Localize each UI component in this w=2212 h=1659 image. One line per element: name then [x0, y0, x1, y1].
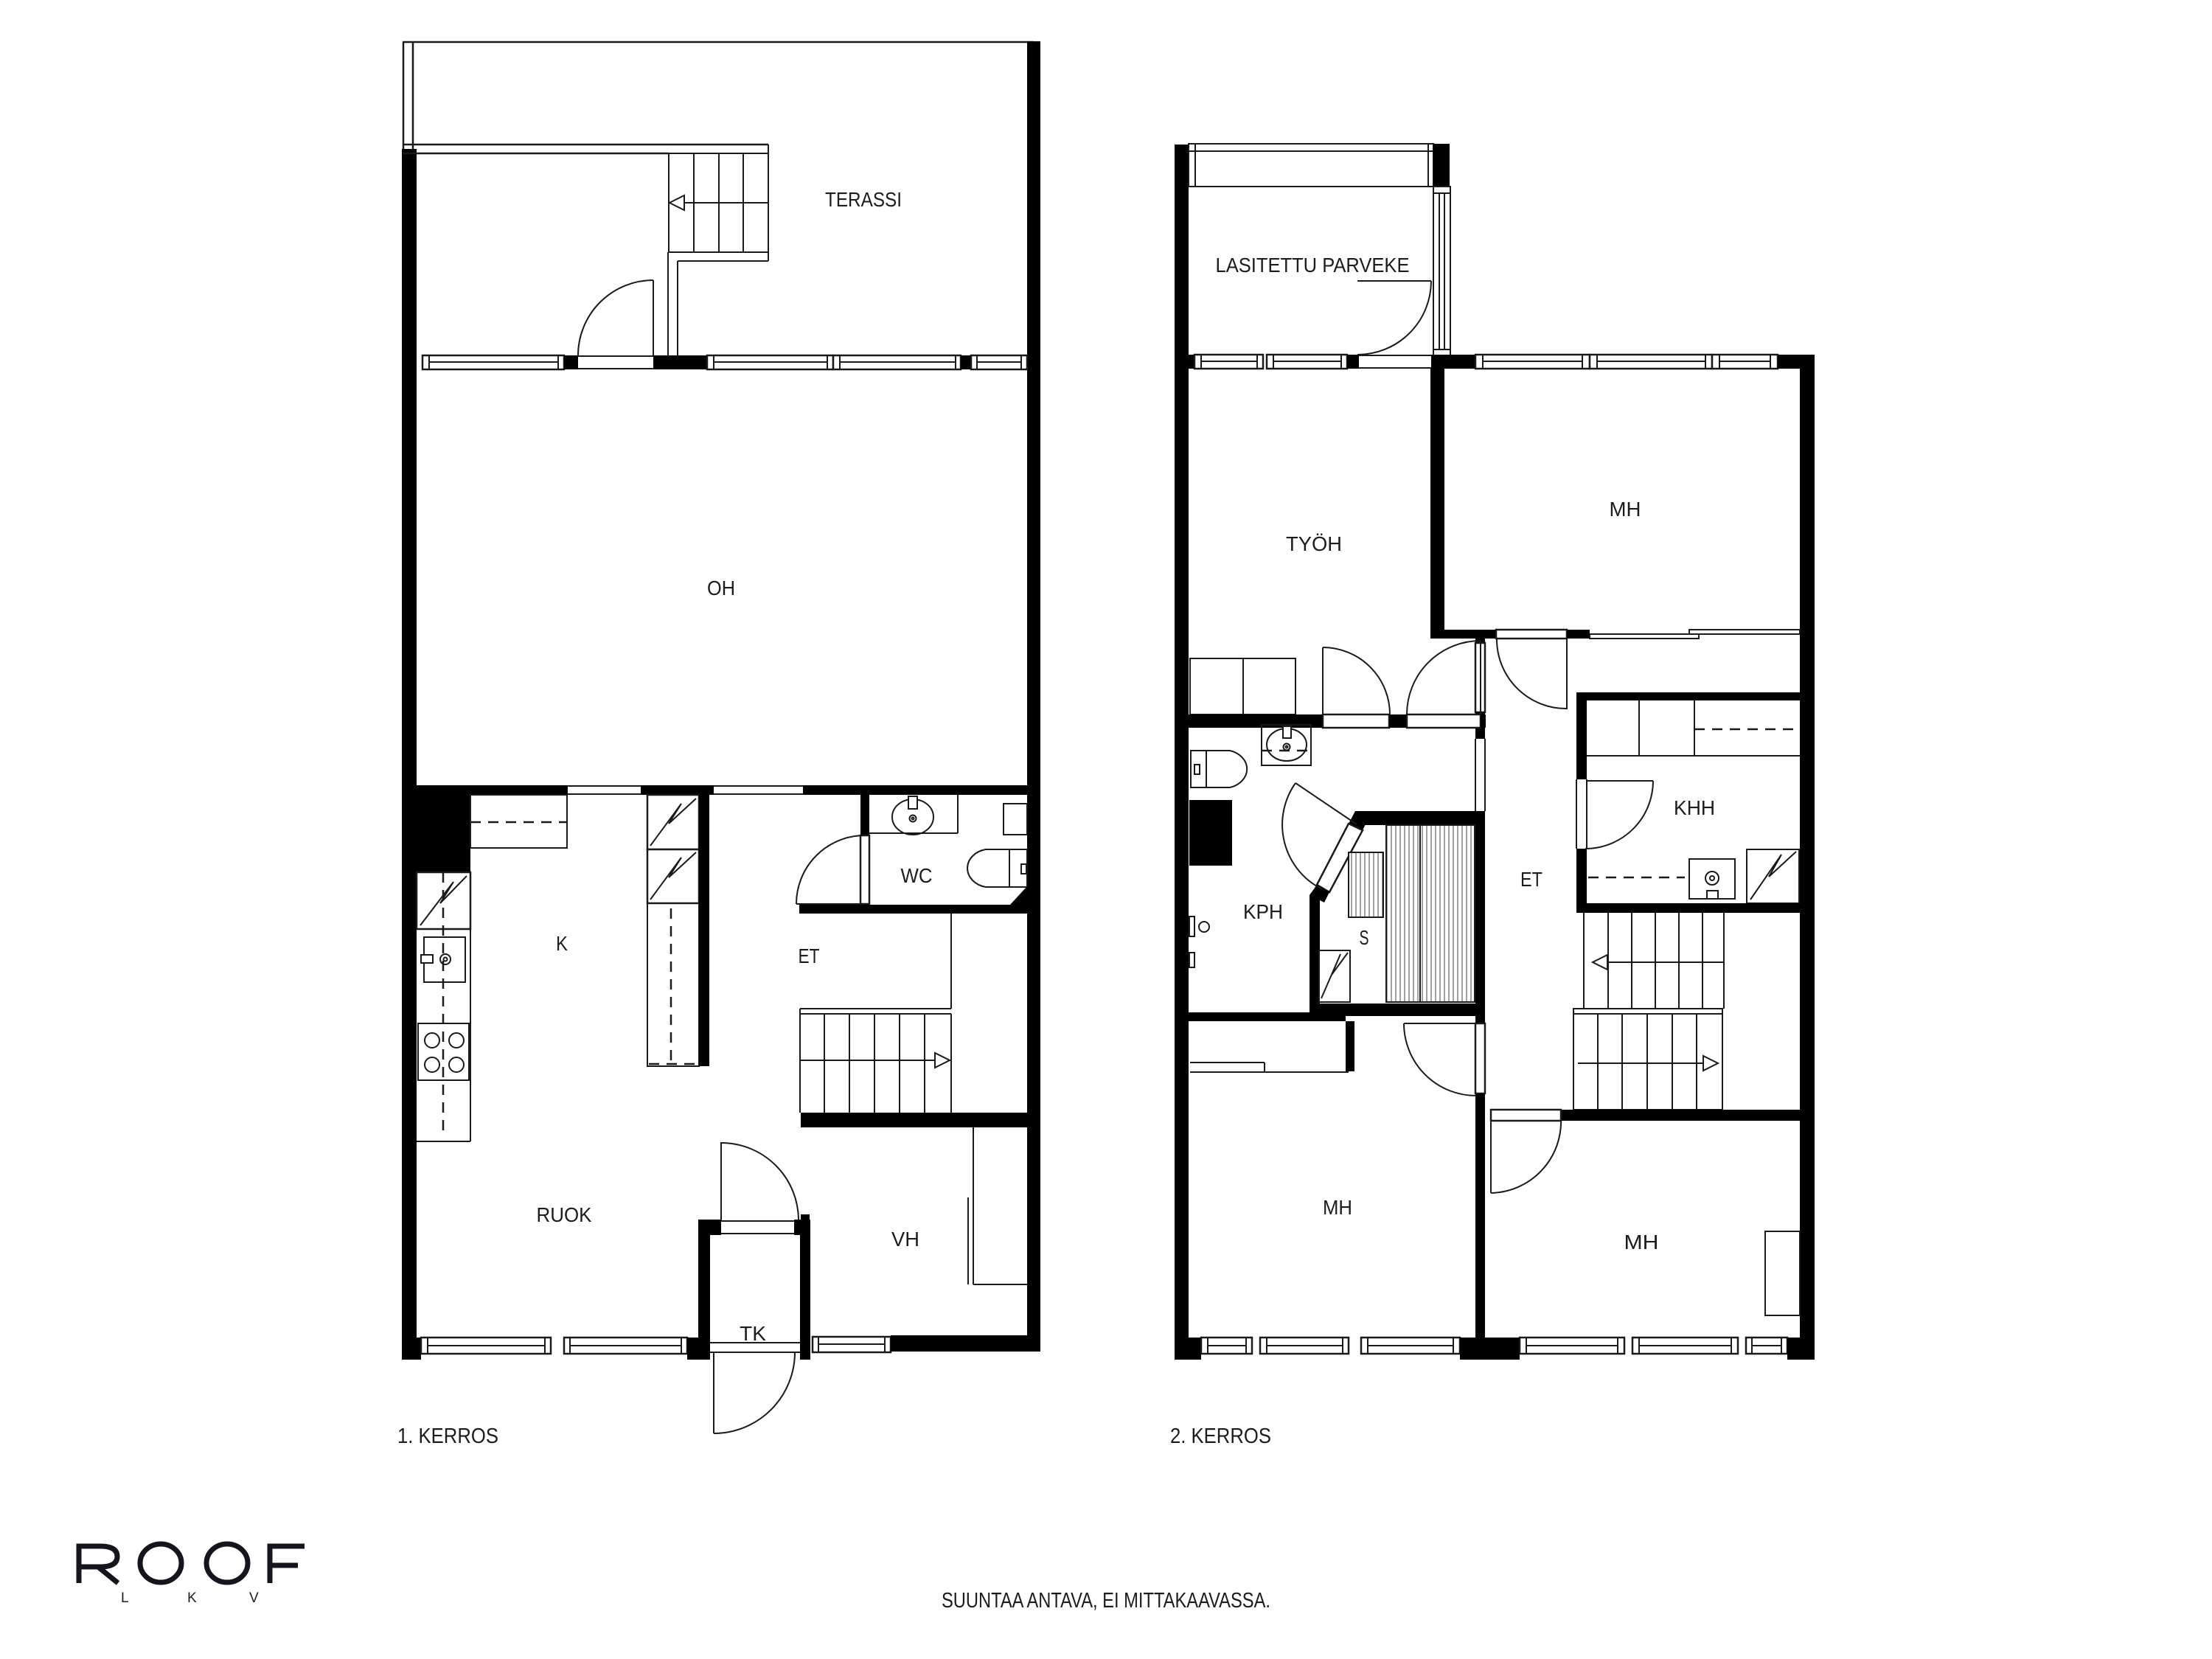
- svg-text:RUOK: RUOK: [537, 1203, 592, 1226]
- svg-text:L: L: [121, 1590, 129, 1606]
- svg-text:TK: TK: [740, 1322, 766, 1345]
- svg-text:MH: MH: [1323, 1196, 1352, 1219]
- svg-text:2. KERROS: 2. KERROS: [1170, 1425, 1271, 1448]
- svg-text:1. KERROS: 1. KERROS: [397, 1425, 498, 1448]
- svg-text:VH: VH: [891, 1228, 919, 1251]
- svg-text:OH: OH: [707, 577, 735, 599]
- svg-text:MH: MH: [1624, 1231, 1659, 1253]
- svg-text:TYÖH: TYÖH: [1286, 532, 1342, 555]
- svg-text:MH: MH: [1610, 498, 1641, 521]
- svg-text:S: S: [1360, 926, 1369, 949]
- svg-text:K: K: [187, 1590, 197, 1606]
- svg-text:V: V: [249, 1590, 259, 1606]
- svg-text:SUUNTAA ANTAVA, EI MITTAKAAVAS: SUUNTAA ANTAVA, EI MITTAKAAVASSA.: [942, 1589, 1270, 1613]
- svg-text:WC: WC: [901, 864, 933, 887]
- svg-text:LASITETTU PARVEKE: LASITETTU PARVEKE: [1216, 254, 1410, 276]
- svg-text:ET: ET: [1520, 868, 1543, 891]
- svg-text:KPH: KPH: [1243, 900, 1283, 923]
- svg-text:KHH: KHH: [1674, 796, 1715, 819]
- svg-text:TERASSI: TERASSI: [825, 188, 902, 211]
- svg-text:ET: ET: [799, 945, 820, 967]
- svg-text:K: K: [556, 932, 568, 955]
